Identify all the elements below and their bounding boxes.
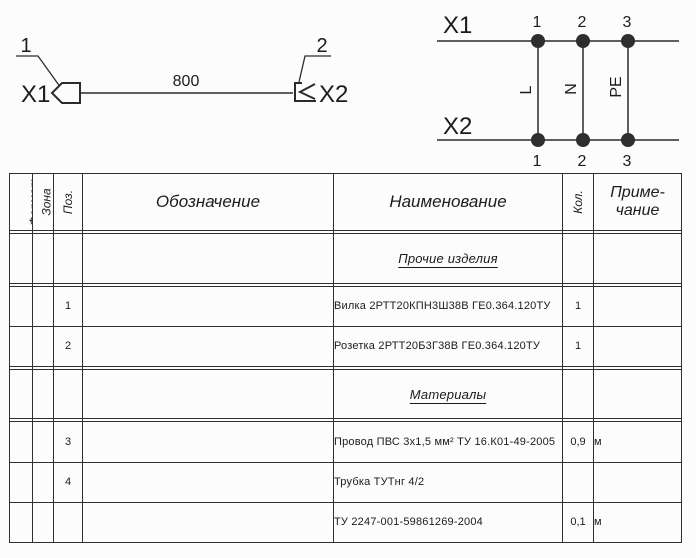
header-pos-label: Поз.: [61, 190, 75, 214]
x2-pin2-dot: [576, 133, 590, 147]
table-header-row: Формат Зона Поз. Обозначение Наименовани…: [10, 174, 682, 231]
table-row: 4 Трубка ТУТнг 4/2: [10, 462, 682, 502]
x1-pin1-number: 1: [533, 14, 542, 31]
section-title: Материалы: [334, 369, 563, 418]
table-row: ТУ 2247-001-59861269-2004 0,1 м: [10, 502, 682, 542]
x2-pin1-dot: [531, 133, 545, 147]
table-row: 3 Провод ПВС 3х1,5 мм² ТУ 16.К01-49-2005…: [10, 422, 682, 462]
x2-pin1-number: 1: [533, 153, 542, 170]
diagram-x2-label: X2: [443, 113, 472, 140]
cable-length-label: 800: [173, 73, 200, 90]
header-name: Наименование: [334, 174, 563, 231]
section-title: Прочие изделия: [334, 234, 563, 283]
table-row: 2 Розетка 2РТТ20Б3Г38В ГЕ0.364.120ТУ 1: [10, 326, 682, 366]
x1-pin3-number: 3: [623, 14, 632, 31]
wire-n-label: N: [563, 83, 580, 95]
header-format: Формат: [10, 174, 33, 231]
callout-2-leader-line: [299, 56, 331, 82]
x1-pin3-dot: [621, 34, 635, 48]
socket-symbol-chevron: [300, 84, 315, 99]
specification-table: Формат Зона Поз. Обозначение Наименовани…: [9, 173, 682, 543]
x1-connector-label: X1: [21, 81, 50, 108]
header-format-label: Формат: [27, 178, 33, 226]
cable-assembly-drawing: 1 X1 800 2 X2: [16, 35, 348, 108]
header-zone: Зона: [33, 174, 54, 231]
x1-pin2-dot: [576, 34, 590, 48]
header-pos: Поз.: [54, 174, 83, 231]
plug-symbol: [52, 83, 80, 103]
x2-pin2-number: 2: [578, 153, 587, 170]
x2-pin3-number: 3: [623, 153, 632, 170]
wire-l-label: L: [518, 85, 535, 94]
header-zone-label: Зона: [40, 188, 54, 215]
header-qty-label: Кол.: [571, 190, 585, 214]
x2-pin3-dot: [621, 133, 635, 147]
wire-pe-label: PE: [608, 76, 625, 97]
drawings-area: 1 X1 800 2 X2 X1 X2 1 2: [0, 0, 696, 172]
table-row: 1 Вилка 2РТТ20КПН3Ш38В ГЕ0.364.120ТУ 1: [10, 286, 682, 326]
header-designation: Обозначение: [83, 174, 334, 231]
section-row: Прочие изделия: [10, 234, 682, 283]
diagram-x1-label: X1: [443, 12, 472, 39]
callout-2-label: 2: [316, 35, 327, 57]
wiring-diagram: X1 X2 1 2 3 1 2 3 L N PE: [437, 12, 679, 170]
x1-pin1-dot: [531, 34, 545, 48]
callout-1-label: 1: [20, 35, 31, 57]
section-row: Материалы: [10, 369, 682, 418]
x2-connector-label: X2: [319, 81, 348, 108]
header-note: Приме- чание: [594, 174, 682, 231]
x1-pin2-number: 2: [578, 14, 587, 31]
technical-drawing-sheet: 1 X1 800 2 X2 X1 X2 1 2: [0, 0, 696, 558]
header-qty: Кол.: [563, 174, 594, 231]
